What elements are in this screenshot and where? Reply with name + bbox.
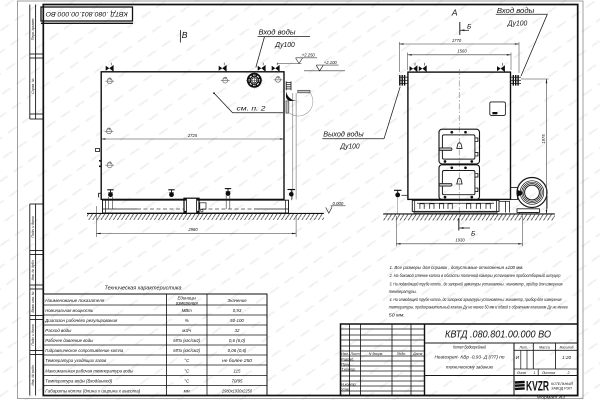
svg-text:Ду100: Ду100 bbox=[274, 40, 294, 49]
svg-text:Вход воды: Вход воды bbox=[497, 6, 535, 15]
svg-text:Н.контр.: Н.контр. bbox=[341, 382, 356, 386]
svg-text:Справ. №: Справ. № bbox=[31, 78, 35, 94]
svg-text:Гидравлическое сопротивление к: Гидравлическое сопротивление котла bbox=[45, 348, 124, 353]
svg-text:%: % bbox=[185, 318, 189, 323]
svg-text:Температура уходящих газов: Температура уходящих газов bbox=[45, 358, 107, 363]
svg-text:Диапазон рабочего регулировани: Диапазон рабочего регулирования bbox=[44, 318, 118, 323]
svg-text:0.000: 0.000 bbox=[333, 201, 344, 206]
svg-text:3. На подводящей трубе котла: 3. На подводящей трубе котла , до запорн… bbox=[390, 280, 563, 286]
svg-text:Ду100: Ду100 bbox=[339, 141, 359, 150]
svg-text:Расход воды: Расход воды bbox=[45, 328, 72, 333]
svg-text:Дата: Дата bbox=[412, 352, 422, 356]
svg-text:мм: мм bbox=[184, 389, 190, 394]
svg-text:1. Все размеры для справок ,: 1. Все размеры для справок , допустимые … bbox=[390, 265, 524, 270]
svg-text:32: 32 bbox=[235, 328, 240, 333]
svg-text:МПа (кгс/см2): МПа (кгс/см2) bbox=[173, 348, 200, 353]
svg-text:Выход воды: Выход воды bbox=[323, 130, 364, 139]
svg-text:2725: 2725 bbox=[187, 133, 198, 138]
svg-text:2. На боковой стенке котла в: 2. На боковой стенке котла в области топ… bbox=[389, 272, 561, 278]
svg-text:см. п. 2: см. п. 2 bbox=[237, 106, 266, 113]
svg-text:Подп. и дата: Подп. и дата bbox=[31, 216, 35, 237]
svg-text:МПа (кгс/см2): МПа (кгс/см2) bbox=[173, 338, 200, 343]
svg-text:Ду100: Ду100 bbox=[507, 18, 527, 27]
svg-text:не более 250: не более 250 bbox=[222, 358, 253, 363]
svg-text:Температура воды (Вход/выход): Температура воды (Вход/выход) bbox=[45, 379, 113, 384]
svg-text:Изм.: Изм. bbox=[341, 352, 349, 356]
svg-text:Лист: Лист bbox=[349, 352, 359, 356]
svg-text:1: 1 bbox=[534, 371, 536, 375]
svg-text:В: В bbox=[182, 30, 188, 40]
svg-text:50-100: 50-100 bbox=[230, 318, 244, 323]
svg-text:Перв. примен.: Перв. примен. bbox=[31, 18, 35, 41]
svg-text:Б: Б bbox=[471, 230, 476, 237]
svg-text:70/95: 70/95 bbox=[232, 379, 244, 384]
svg-text:Подп. и дата: Подп. и дата bbox=[31, 324, 35, 345]
svg-text:0,6 (6,0): 0,6 (6,0) bbox=[229, 338, 246, 343]
svg-text:1975: 1975 bbox=[541, 134, 546, 144]
svg-text:Вход воды: Вход воды bbox=[259, 28, 297, 37]
svg-text:КВТД .080.801.00.000 ВО: КВТД .080.801.00.000 ВО bbox=[445, 329, 551, 340]
svg-text:+2.100: +2.100 bbox=[324, 60, 338, 65]
svg-text:Т.контр.: Т.контр. bbox=[341, 367, 356, 371]
svg-text:4. На отводящей трубе котла ,: 4. На отводящей трубе котла ,до запорной… bbox=[390, 296, 562, 302]
svg-text:1:20: 1:20 bbox=[562, 355, 571, 360]
svg-text:KVZR: KVZR bbox=[526, 377, 549, 393]
svg-text:КВТД .080.801.00.000 ВО: КВТД .080.801.00.000 ВО bbox=[46, 10, 128, 17]
svg-text:Техническая характеристика: Техническая характеристика bbox=[105, 285, 182, 291]
svg-text:Heatexpert- КВр -0,93- Д (ПТ): Heatexpert- КВр -0,93- Д (ПТ) по bbox=[435, 354, 505, 359]
svg-text:Масштаб: Масштаб bbox=[560, 346, 575, 350]
svg-text:Пров.: Пров. bbox=[341, 362, 350, 366]
svg-text:°С: °С bbox=[184, 369, 190, 374]
svg-text:Лист: Лист bbox=[516, 371, 526, 375]
svg-text:МВт: МВт bbox=[182, 308, 193, 313]
svg-text:А: А bbox=[451, 7, 458, 17]
svg-text:Значение: Значение bbox=[227, 298, 247, 303]
svg-text:Утв.: Утв. bbox=[341, 387, 349, 391]
svg-text:+2.250: +2.250 bbox=[302, 53, 316, 58]
svg-text:Лит.: Лит. bbox=[518, 346, 527, 350]
svg-text:2: 2 bbox=[567, 371, 570, 375]
svg-text:Рабочее давление воды: Рабочее давление воды bbox=[45, 338, 94, 343]
svg-text:N докум.: N докум. bbox=[369, 352, 384, 356]
svg-text:°С: °С bbox=[184, 379, 190, 384]
svg-text:измерения: измерения bbox=[176, 300, 199, 305]
svg-text:0,06 (0,6): 0,06 (0,6) bbox=[228, 348, 247, 353]
svg-text:2980: 2980 bbox=[187, 227, 198, 232]
svg-text:115: 115 bbox=[234, 369, 242, 374]
svg-text:1560: 1560 bbox=[457, 49, 467, 54]
svg-text:Котел Водогрейный: Котел Водогрейный bbox=[453, 343, 486, 349]
svg-text:0,93: 0,93 bbox=[233, 308, 242, 313]
svg-text:Б: Б bbox=[467, 24, 472, 31]
svg-text:м3/ч: м3/ч bbox=[182, 328, 192, 333]
svg-text:Наименование показателя: Наименование показателя bbox=[45, 298, 105, 303]
svg-text:50 мм.: 50 мм. bbox=[389, 313, 405, 318]
svg-text:Масса: Масса bbox=[539, 346, 550, 350]
svg-text:Формат А3: Формат А3 bbox=[537, 394, 566, 399]
svg-text:Максимальная рабочая температу: Максимальная рабочая температура воды bbox=[45, 369, 134, 374]
svg-text:1770: 1770 bbox=[452, 38, 462, 43]
svg-text:техническому заданию: техническому заданию bbox=[446, 364, 494, 369]
svg-text:1930: 1930 bbox=[455, 237, 465, 242]
svg-text:2980х1930х2250: 2980х1930х2250 bbox=[221, 389, 252, 394]
svg-text:Листов: Листов bbox=[541, 371, 555, 375]
svg-text:Инв. № подл.: Инв. № подл. bbox=[31, 364, 35, 385]
svg-text:Номинальная мощность: Номинальная мощность bbox=[45, 308, 94, 313]
svg-text:ЗАВОД РЭП: ЗАВОД РЭП bbox=[551, 387, 572, 391]
svg-text:Инв. № дубл.: Инв. № дубл. bbox=[31, 260, 35, 281]
svg-text:Подп.: Подп. bbox=[397, 352, 407, 356]
svg-text:Габариты котла (длина х ширина: Габариты котла (длина х ширина х высота) bbox=[45, 389, 141, 394]
svg-text:Разраб.: Разраб. bbox=[341, 357, 354, 361]
svg-text:Взам. инв. №: Взам. инв. № bbox=[31, 291, 35, 312]
svg-text:температуры.: температуры. bbox=[389, 289, 417, 294]
svg-text:°С: °С bbox=[184, 358, 190, 363]
svg-text:температуры, предохранительны: температуры, предохранительный клапан Ду… bbox=[389, 304, 568, 310]
